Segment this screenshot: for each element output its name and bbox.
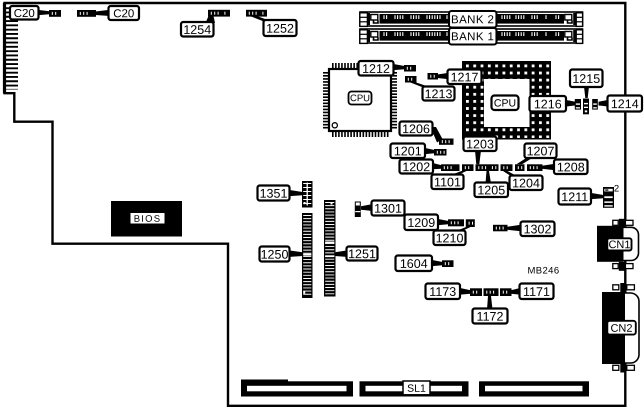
svg-text:1213: 1213 xyxy=(425,87,453,101)
svg-text:1254: 1254 xyxy=(183,23,211,37)
svg-text:1211: 1211 xyxy=(561,190,588,204)
svg-text:1351: 1351 xyxy=(260,187,288,201)
svg-text:1215: 1215 xyxy=(572,72,600,86)
svg-text:1206: 1206 xyxy=(402,122,430,136)
svg-text:MB246: MB246 xyxy=(527,265,559,276)
svg-text:1171: 1171 xyxy=(523,285,550,299)
svg-text:1250: 1250 xyxy=(261,248,289,262)
svg-text:CPU: CPU xyxy=(494,97,516,109)
svg-text:2: 2 xyxy=(614,183,619,194)
svg-text:1252: 1252 xyxy=(266,22,294,36)
svg-text:1216: 1216 xyxy=(534,97,562,111)
svg-text:1604: 1604 xyxy=(400,257,428,271)
svg-text:1208: 1208 xyxy=(557,160,585,174)
svg-text:C20: C20 xyxy=(113,8,134,20)
svg-text:1207: 1207 xyxy=(527,144,555,158)
svg-text:1204: 1204 xyxy=(512,176,540,190)
svg-text:BIOS: BIOS xyxy=(134,214,162,225)
svg-text:SL1: SL1 xyxy=(407,383,426,395)
svg-text:1205: 1205 xyxy=(477,183,505,197)
svg-text:1251: 1251 xyxy=(348,247,376,261)
svg-text:CN1: CN1 xyxy=(608,239,630,251)
svg-text:1202: 1202 xyxy=(402,160,430,174)
svg-text:1172: 1172 xyxy=(477,310,504,324)
svg-text:CN2: CN2 xyxy=(610,323,632,335)
svg-text:BANK 2: BANK 2 xyxy=(451,14,494,26)
svg-text:1212: 1212 xyxy=(362,62,390,76)
svg-text:1203: 1203 xyxy=(466,137,494,151)
svg-text:1217: 1217 xyxy=(451,70,479,84)
svg-text:1301: 1301 xyxy=(374,202,402,216)
svg-text:1302: 1302 xyxy=(524,222,552,236)
svg-text:1201: 1201 xyxy=(394,144,422,158)
svg-text:CPU: CPU xyxy=(350,93,370,104)
svg-text:BANK 1: BANK 1 xyxy=(451,31,494,43)
svg-text:1173: 1173 xyxy=(429,285,456,299)
svg-text:1101: 1101 xyxy=(434,175,461,189)
svg-text:1209: 1209 xyxy=(407,216,435,230)
svg-text:1210: 1210 xyxy=(436,231,464,245)
svg-text:C20: C20 xyxy=(14,8,35,20)
svg-text:1214: 1214 xyxy=(611,97,639,111)
